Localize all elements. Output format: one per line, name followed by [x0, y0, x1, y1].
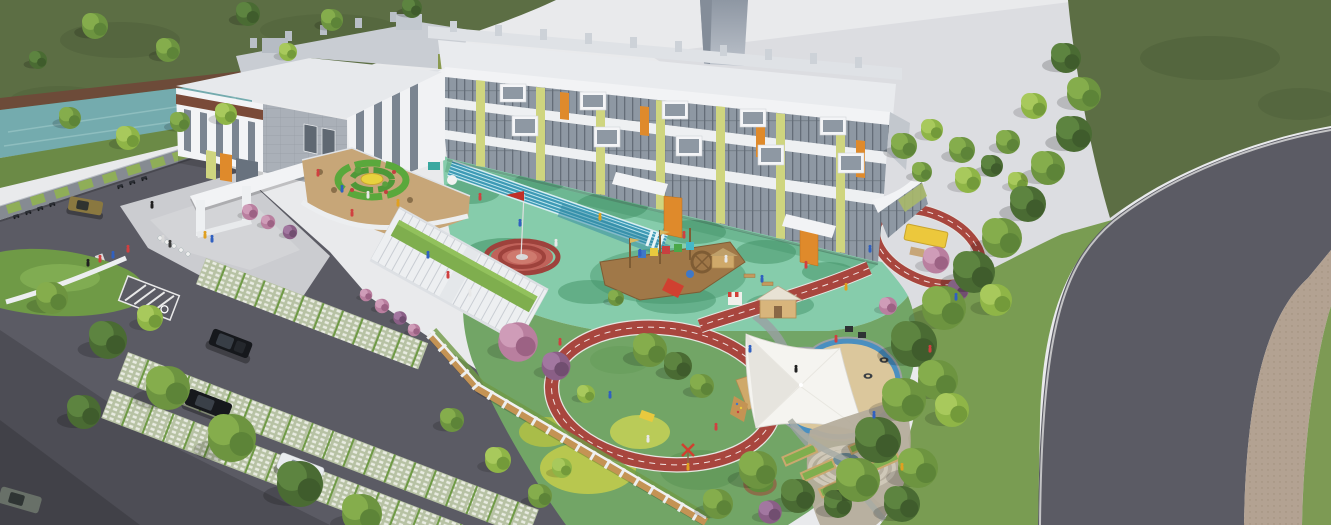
teal-canopy: [428, 162, 440, 170]
striped-kiosk: [728, 292, 742, 305]
render-svg: [0, 0, 1331, 525]
white-umbrella: [447, 175, 457, 185]
easel-blackboard: [845, 326, 853, 332]
aerial-render-kindergarten-campus: [0, 0, 1331, 525]
